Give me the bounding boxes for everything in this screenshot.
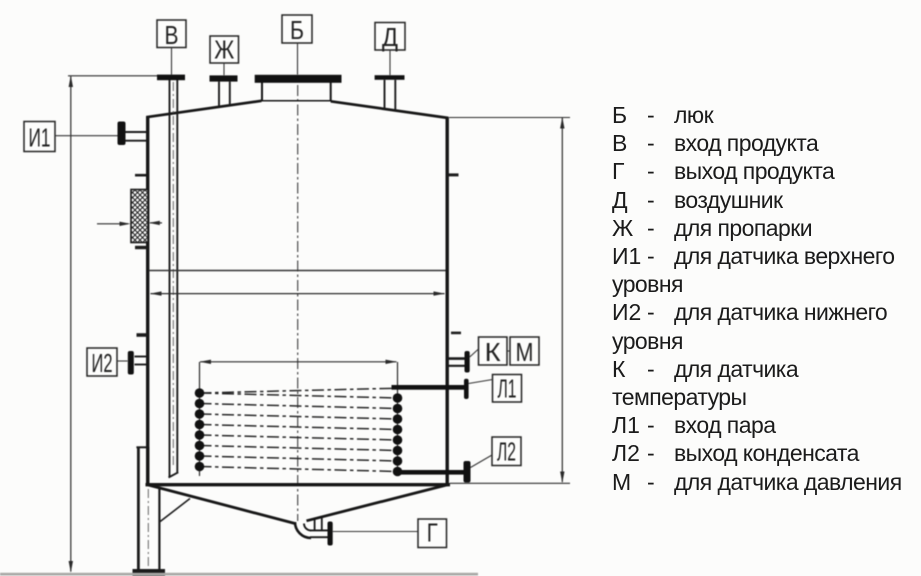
svg-text:К: К [485,337,501,367]
svg-text:И1: И1 [29,123,51,153]
svg-text:Ж: Ж [214,35,234,65]
svg-text:Л2: Л2 [497,437,516,467]
svg-text:Г: Г [427,518,438,548]
svg-text:Б: Б [290,15,304,45]
svg-text:М: М [516,337,534,367]
svg-text:В: В [165,20,179,50]
svg-text:Д: Д [382,22,398,52]
svg-text:Л1: Л1 [498,374,517,404]
svg-text:И2: И2 [92,348,113,378]
